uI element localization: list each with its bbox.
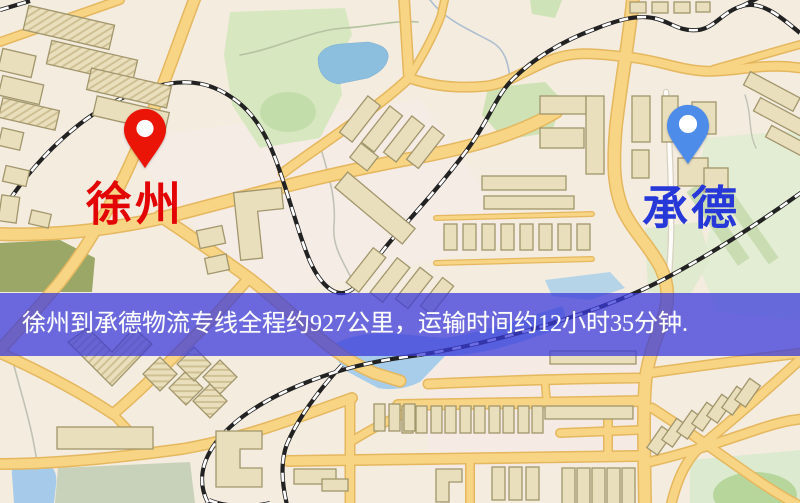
origin-city-label: 徐州	[86, 168, 184, 234]
map-canvas[interactable]: 徐州到承德物流专线全程约927公里，运输时间约12小时35分钟. 徐州 承德	[0, 0, 800, 503]
origin-pin-icon[interactable]	[122, 107, 168, 170]
destination-pin-icon[interactable]	[665, 103, 711, 166]
destination-city-label: 承德	[642, 172, 740, 238]
map-tiles	[0, 0, 800, 503]
route-info-banner: 徐州到承德物流专线全程约927公里，运输时间约12小时35分钟.	[0, 293, 800, 356]
route-info-text: 徐州到承德物流专线全程约927公里，运输时间约12小时35分钟.	[22, 311, 688, 337]
